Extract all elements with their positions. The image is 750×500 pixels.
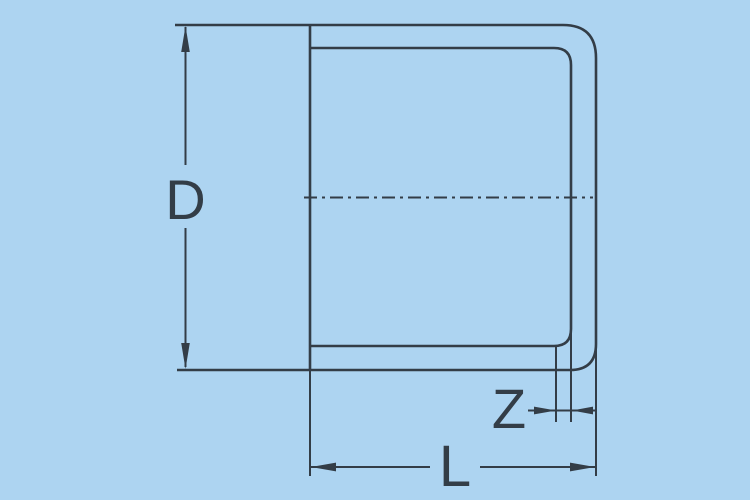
z-arrowhead-left-icon (572, 407, 593, 415)
l-arrowhead-left-icon (311, 463, 336, 472)
dimension-label-l: L (439, 434, 471, 499)
dimension-label-z: Z (492, 377, 526, 440)
l-arrowhead-right-icon (570, 463, 595, 472)
end-cap-diagram: D Z L (0, 0, 750, 500)
d-arrowhead-down-icon (181, 343, 190, 369)
arrowheads (181, 26, 595, 471)
d-arrowhead-up-icon (181, 26, 190, 52)
technical-drawing-canvas: D Z L (0, 0, 750, 500)
dimension-labels: D Z L (165, 168, 526, 499)
dimension-label-d: D (165, 168, 205, 231)
z-arrowhead-right-icon (534, 407, 556, 415)
